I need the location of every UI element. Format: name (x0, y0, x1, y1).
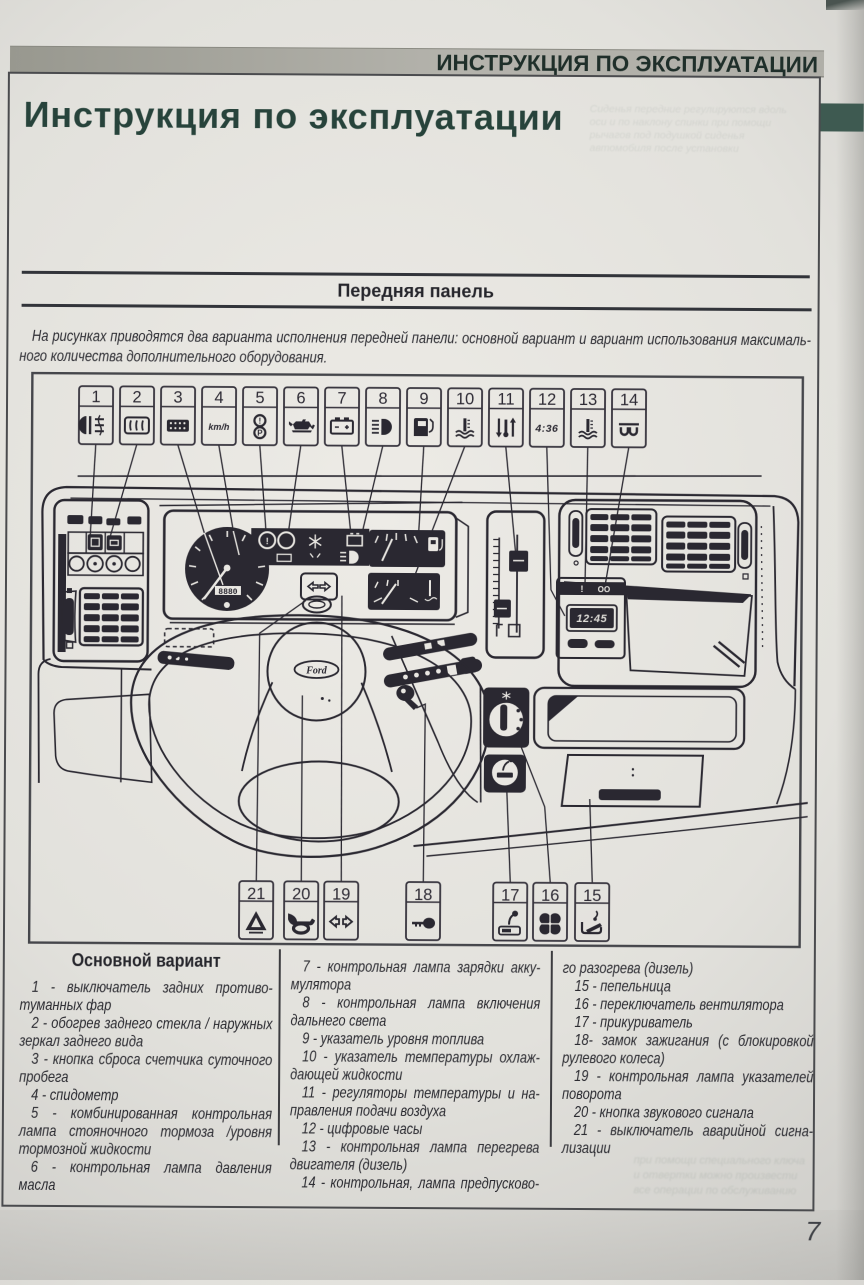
svg-text:1: 1 (91, 388, 100, 406)
svg-text:20: 20 (292, 885, 310, 903)
svg-text:8: 8 (378, 390, 387, 408)
svg-text:13: 13 (579, 391, 597, 409)
svg-text:18: 18 (414, 886, 432, 904)
svg-text:km/h: km/h (208, 422, 230, 432)
svg-text:P: P (257, 429, 263, 438)
svg-text:17: 17 (501, 887, 519, 905)
svg-text:12:45: 12:45 (576, 613, 607, 625)
svg-text:3: 3 (173, 389, 182, 407)
svg-text:2: 2 (132, 388, 141, 406)
svg-text:14: 14 (620, 391, 638, 409)
svg-text:6: 6 (296, 389, 305, 407)
svg-text:5: 5 (255, 389, 264, 407)
svg-text:OO: OO (598, 585, 611, 594)
svg-text:15: 15 (583, 887, 601, 905)
svg-text:9: 9 (419, 390, 428, 408)
svg-text:8880: 8880 (218, 588, 237, 597)
svg-text:10: 10 (456, 390, 474, 408)
svg-text:!: ! (259, 417, 262, 426)
svg-text:7: 7 (337, 390, 346, 408)
svg-text:11: 11 (497, 391, 514, 409)
svg-text:4: 4 (214, 389, 223, 407)
svg-text:!: ! (266, 536, 269, 546)
svg-text:Ford: Ford (305, 665, 328, 676)
svg-text:4:36: 4:36 (534, 423, 558, 435)
svg-text:19: 19 (332, 886, 350, 904)
svg-text:!: ! (580, 584, 583, 594)
svg-text:16: 16 (541, 887, 559, 905)
svg-text:12: 12 (538, 391, 556, 409)
svg-text:21: 21 (247, 885, 265, 903)
